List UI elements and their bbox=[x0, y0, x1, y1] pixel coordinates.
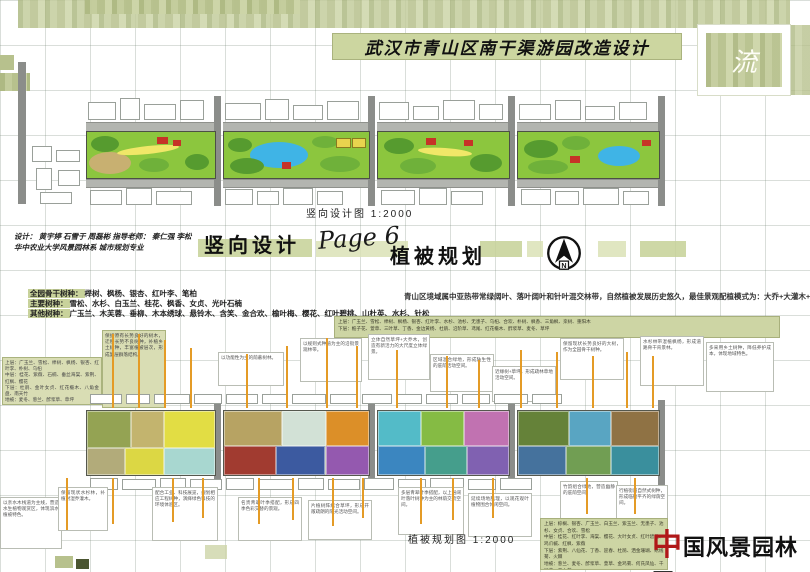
page-number-note: Page 6 bbox=[317, 221, 401, 255]
tree-cluster bbox=[562, 136, 590, 150]
road bbox=[517, 179, 658, 188]
highlight-bar bbox=[527, 241, 543, 257]
tree-cluster bbox=[528, 160, 568, 174]
path bbox=[117, 143, 179, 157]
vegetation-zone bbox=[326, 411, 370, 446]
strip-line2: 下层：栀子花、萱草、三叶草、丁香、金边黄杨、杜鹃、沿阶草、鸢尾、红花檵木、酢浆草… bbox=[338, 326, 776, 333]
design-poster: 武汉市青山区南干渠游园改造设计 流 bbox=[0, 0, 810, 572]
highlight-bar bbox=[480, 241, 522, 257]
tree-cluster bbox=[91, 136, 119, 152]
vegetation-zone bbox=[569, 411, 611, 446]
building-outline bbox=[381, 190, 415, 205]
plant-summary-items: 榉树、枫杨、银杏、红叶李、笔柏 bbox=[85, 289, 198, 298]
road bbox=[223, 179, 368, 188]
building-outline bbox=[292, 394, 326, 404]
leader-line bbox=[190, 348, 192, 408]
vegetation-zone bbox=[611, 446, 659, 475]
north-compass: N bbox=[546, 235, 582, 271]
credits-line2: 华中农业大学风景园林系 城市规划专业 bbox=[14, 242, 234, 253]
tree-cluster bbox=[524, 140, 558, 158]
building-outline bbox=[293, 105, 323, 120]
compass-north-letter: N bbox=[561, 261, 566, 270]
upper-plan-panel-4 bbox=[517, 96, 658, 206]
road bbox=[86, 179, 214, 188]
tree-cluster bbox=[320, 156, 360, 172]
plant-line: 地被：葱兰、麦冬、酢浆草、萱草、金鸡菊、何氏凤仙、千屈菜、美人蕉 bbox=[544, 561, 664, 570]
page-title-text: 武汉市青山区南干渠游园改造设计 bbox=[365, 34, 650, 59]
plant-list-box-left: 上层：广玉兰、雪松、榉树、枫杨、银杏、红叶李、朴树、乌桕 中层：桂花、紫薇、石楠… bbox=[2, 357, 102, 405]
tree-cluster bbox=[228, 138, 252, 152]
plant-line: 地被：麦冬、葱兰、酢浆草、草坪 bbox=[5, 397, 99, 403]
vegetation-zone bbox=[467, 446, 509, 475]
leader-line bbox=[634, 478, 636, 514]
upper-plan-caption: 竖向设计图 1:2000 bbox=[306, 205, 413, 220]
building-outline bbox=[90, 190, 122, 205]
building-outline bbox=[555, 191, 579, 205]
building-outline bbox=[519, 104, 551, 120]
annotation-box: 立体自然草坪+大乔木，创造有新活力的大尺度立体绿景。 bbox=[368, 334, 430, 380]
building-outline bbox=[462, 394, 490, 404]
building-row bbox=[379, 98, 505, 120]
building-outline bbox=[120, 98, 140, 120]
building-outline bbox=[154, 394, 190, 404]
vegetation-zone bbox=[378, 411, 421, 446]
park-plan-segment bbox=[377, 131, 510, 179]
vegetation-zone bbox=[518, 446, 566, 475]
leader-line bbox=[396, 350, 398, 408]
corner-tile-character: 流 bbox=[706, 33, 782, 87]
leader-line bbox=[626, 352, 628, 408]
decor-square bbox=[76, 559, 89, 569]
building-outline bbox=[419, 188, 447, 205]
building-row bbox=[381, 189, 505, 205]
plant-line: 下层：紫荆、八仙花、丁香、迎春、杜鹃、洒金珊瑚、绣线菊、火棘 bbox=[544, 548, 664, 561]
heading-vegetation-planning: 植被规划 bbox=[390, 240, 486, 269]
leader-line bbox=[112, 334, 114, 408]
strip-line1: 上层：广玉兰、雪松、榉树、枫杨、银杏、红叶李、水杉、池杉、无患子、乌桕、合欢、朴… bbox=[338, 319, 776, 326]
building-outline bbox=[88, 102, 116, 120]
building-red bbox=[642, 140, 651, 146]
plant-summary-label: 主要树种： bbox=[28, 299, 70, 308]
leader-line bbox=[164, 340, 166, 408]
building-outline bbox=[298, 478, 324, 490]
annotation-box: 水杉林带混植枫杨，形成道路骨干背景林。 bbox=[640, 336, 704, 386]
vegetation-zone bbox=[282, 411, 326, 446]
building-outline bbox=[396, 394, 422, 404]
highlight-bar bbox=[598, 241, 626, 257]
annotation-box: 配合工业、科技展览，规划相应工程树种，演绎绿色科技的环境体验区。 bbox=[152, 487, 218, 541]
path bbox=[418, 146, 472, 158]
building-red bbox=[464, 140, 473, 146]
lower-plan-caption: 植被规划图 1:2000 bbox=[408, 531, 515, 546]
tree-cluster bbox=[400, 158, 436, 174]
building-row bbox=[519, 98, 655, 120]
annotation-box: 以功能性为主的荫蔽树林。 bbox=[218, 352, 284, 386]
upper-plan-panel-3 bbox=[377, 96, 508, 206]
park-plan-segment bbox=[517, 131, 660, 179]
vegetation-zone bbox=[224, 411, 282, 446]
park-plan-segment bbox=[86, 131, 216, 179]
building-outline bbox=[327, 101, 359, 120]
building-outline bbox=[426, 394, 458, 404]
credits-line1: 设计： 黄宇婷 石雪于 周磊彬 指导老师： 秦仁强 李松 bbox=[14, 231, 234, 242]
upper-plan-strip bbox=[86, 96, 666, 206]
building-outline bbox=[194, 394, 222, 404]
decor-square bbox=[0, 55, 14, 70]
building-outline bbox=[500, 478, 532, 490]
leader-line bbox=[112, 478, 114, 524]
vegetation-zone bbox=[566, 446, 611, 475]
building-outline bbox=[257, 191, 279, 205]
building-outline bbox=[126, 188, 152, 205]
bamboo-photo-strip bbox=[85, 0, 300, 14]
building-outline bbox=[521, 189, 551, 205]
vegetation-panel-3 bbox=[377, 410, 510, 476]
decor-square bbox=[205, 545, 227, 559]
leader-line bbox=[420, 478, 422, 524]
annotation-box: 多层青翠叶季搭配，以上层阔叶落叶树种为主的林荫交流空间。 bbox=[398, 487, 464, 535]
vegetation-zone bbox=[224, 446, 276, 475]
building-red bbox=[173, 140, 181, 146]
building-outline bbox=[479, 104, 503, 120]
building-outline bbox=[330, 394, 358, 404]
tree-cluster bbox=[185, 154, 209, 170]
building-yellow bbox=[336, 138, 351, 148]
leader-line bbox=[446, 356, 448, 408]
plant-summary-label: 全园骨干树种： bbox=[28, 289, 85, 298]
building-yellow bbox=[352, 138, 366, 148]
leader-line bbox=[520, 350, 522, 408]
building-outline bbox=[364, 478, 394, 490]
vegetation-zone bbox=[378, 446, 425, 475]
tree-cluster bbox=[470, 154, 502, 172]
vegetation-zone bbox=[518, 411, 569, 446]
logo-first-char: 中 bbox=[652, 528, 683, 563]
leader-line bbox=[172, 478, 174, 522]
building-outline bbox=[156, 191, 192, 205]
building-outline bbox=[58, 170, 80, 186]
site-logo[interactable]: 中国风景园林网 chla.com.cn 传播文化 bbox=[652, 520, 808, 570]
plant-line: 上层：棕榈、银杏、广玉兰、白玉兰、紫玉兰、无患子、池杉、女贞、合欢、雪松 bbox=[544, 521, 664, 534]
vegetation-panel-1 bbox=[86, 410, 216, 476]
annotation-box: 竹韵组合绿地，营造幽静的庇荫空间。 bbox=[560, 481, 618, 519]
building-row bbox=[225, 98, 365, 120]
building-red bbox=[282, 162, 291, 169]
building-outline bbox=[555, 100, 581, 120]
vegetation-zone bbox=[131, 411, 164, 448]
leader-line bbox=[362, 478, 364, 518]
building-red bbox=[157, 137, 168, 144]
building-outline bbox=[265, 99, 289, 120]
tree-cluster bbox=[230, 158, 264, 174]
vegetation-zone bbox=[87, 448, 125, 475]
pond bbox=[598, 146, 640, 166]
annotation-box: 以规则式种植为主的沿街景观林带。 bbox=[300, 338, 362, 382]
leader-line bbox=[492, 478, 494, 518]
building-outline bbox=[413, 106, 439, 120]
building-outline bbox=[180, 100, 204, 120]
plant-line: 下层：杜鹃、金叶女贞、红花檵木、八角金盘、南天竹 bbox=[5, 385, 99, 397]
building-outline bbox=[623, 191, 649, 205]
building-outline bbox=[317, 191, 343, 205]
building-row bbox=[90, 189, 210, 205]
building-outline bbox=[379, 102, 409, 120]
highlight-bar bbox=[640, 241, 686, 257]
building-outline bbox=[122, 479, 156, 490]
region-description: 青山区境域属中亚热带常绿阔叶、落叶阔叶和针叶混交林带，自然植被发展历史悠久，最佳… bbox=[404, 291, 810, 302]
leader-line bbox=[356, 346, 358, 408]
tree-cluster bbox=[139, 158, 169, 172]
plant-list-box-right: 上层：棕榈、银杏、广玉兰、白玉兰、紫玉兰、无患子、池杉、女贞、合欢、雪松 中层：… bbox=[540, 518, 668, 570]
credits-block: 设计： 黄宇婷 石雪于 周磊彬 指导老师： 秦仁强 李松 华中农业大学风景园林系… bbox=[14, 231, 234, 254]
building-row bbox=[521, 189, 655, 205]
building-outline bbox=[258, 479, 294, 490]
tree-cluster bbox=[384, 138, 414, 154]
compass-icon: N bbox=[546, 235, 582, 271]
building-outline bbox=[226, 478, 254, 490]
leader-line bbox=[592, 356, 594, 408]
annotation-box: 多采用乡土树种，降低养护成本，体现地域特色。 bbox=[706, 342, 774, 392]
vegetation-zone bbox=[611, 411, 659, 446]
building-outline bbox=[283, 188, 313, 205]
leader-line bbox=[326, 338, 328, 408]
building-row bbox=[90, 394, 656, 404]
building-outline bbox=[494, 394, 528, 404]
leader-line bbox=[332, 478, 334, 526]
leader-line bbox=[66, 478, 68, 530]
context-buildings-left bbox=[32, 146, 82, 204]
annotation-box: 区域混合绿地，形成陆生性的庇荫活动空间。 bbox=[430, 354, 494, 392]
leader-line bbox=[292, 478, 294, 520]
vegetation-zone bbox=[125, 448, 163, 475]
annotation-box: 以亲水木栈道为主线，营造水生植物观赏区，体现滨水植被特色。 bbox=[0, 497, 62, 549]
park-plan-segment bbox=[223, 131, 370, 179]
plant-line: 中层：桂花、紫薇、石楠、垂丝海棠、紫荆、红枫、樱花 bbox=[5, 372, 99, 384]
road-bar-left bbox=[18, 62, 26, 204]
building-outline bbox=[144, 104, 176, 120]
upper-plan-panel-2 bbox=[223, 96, 368, 206]
building-outline bbox=[583, 188, 619, 205]
vegetation-zone bbox=[326, 446, 370, 475]
building-outline bbox=[443, 100, 475, 120]
building-outline bbox=[225, 103, 261, 120]
vegetation-panel-4 bbox=[517, 410, 660, 476]
vegetation-panel-2 bbox=[223, 410, 370, 476]
leader-line bbox=[652, 356, 654, 408]
building-red bbox=[426, 138, 436, 145]
leader-line bbox=[138, 334, 140, 408]
plant-summary-items: 雪松、水杉、白玉兰、桂花、枫香、女贞、光叶石楠 bbox=[70, 299, 243, 308]
building-outline bbox=[32, 146, 52, 162]
building-outline bbox=[40, 192, 72, 204]
annotation-box: 行植街道自然式树种，形成临街平齐的绿荫空间。 bbox=[616, 485, 668, 521]
upper-plan-panel-1 bbox=[86, 96, 214, 206]
leader-line bbox=[586, 478, 588, 514]
vegetation-zone bbox=[164, 411, 215, 448]
tree-cluster bbox=[312, 136, 338, 148]
building-outline bbox=[451, 191, 483, 205]
leader-line bbox=[556, 352, 558, 408]
building-outline bbox=[585, 106, 615, 120]
building-outline bbox=[619, 102, 647, 120]
logo-name: 中国风景园林网 bbox=[652, 520, 808, 572]
vegetation-zone bbox=[464, 411, 509, 446]
building-row bbox=[225, 189, 365, 205]
corner-tile: 流 bbox=[698, 25, 790, 95]
leader-line bbox=[286, 346, 288, 408]
plant-line: 上层：广玉兰、雪松、榉树、枫杨、银杏、红叶李、朴树、乌桕 bbox=[5, 360, 99, 372]
earth-mound bbox=[89, 152, 131, 174]
leader-line bbox=[478, 360, 480, 408]
building-outline bbox=[262, 394, 288, 404]
road bbox=[377, 179, 508, 188]
vegetation-zone bbox=[164, 448, 215, 475]
building-outline bbox=[226, 394, 258, 404]
bamboo-photo-edge bbox=[790, 25, 810, 95]
building-outline bbox=[36, 168, 52, 190]
vegetation-zone bbox=[276, 446, 325, 475]
heading-vertical-design: 竖向设计 bbox=[204, 229, 300, 258]
leader-line bbox=[246, 354, 248, 408]
vegetation-zone bbox=[421, 411, 464, 446]
building-outline bbox=[56, 150, 80, 162]
building-outline bbox=[362, 394, 392, 404]
vegetation-zone bbox=[425, 446, 467, 475]
building-outline bbox=[90, 394, 122, 404]
leader-line bbox=[452, 478, 454, 520]
plant-summary-label: 其他树种： bbox=[28, 309, 70, 318]
page-title: 武汉市青山区南干渠游园改造设计 bbox=[332, 33, 682, 60]
lower-plan-strip bbox=[86, 404, 666, 482]
plant-line: 中层：桂花、红叶李、海棠、樱花、大叶女贞、红叶碧桃、鸡爪槭、红枫、紫薇 bbox=[544, 534, 664, 547]
building-red bbox=[570, 156, 580, 163]
building-outline bbox=[225, 189, 253, 205]
leader-line bbox=[258, 478, 260, 524]
leader-line bbox=[202, 478, 204, 518]
decor-square bbox=[55, 556, 73, 568]
building-row bbox=[88, 98, 212, 120]
vegetation-zone bbox=[87, 411, 131, 448]
